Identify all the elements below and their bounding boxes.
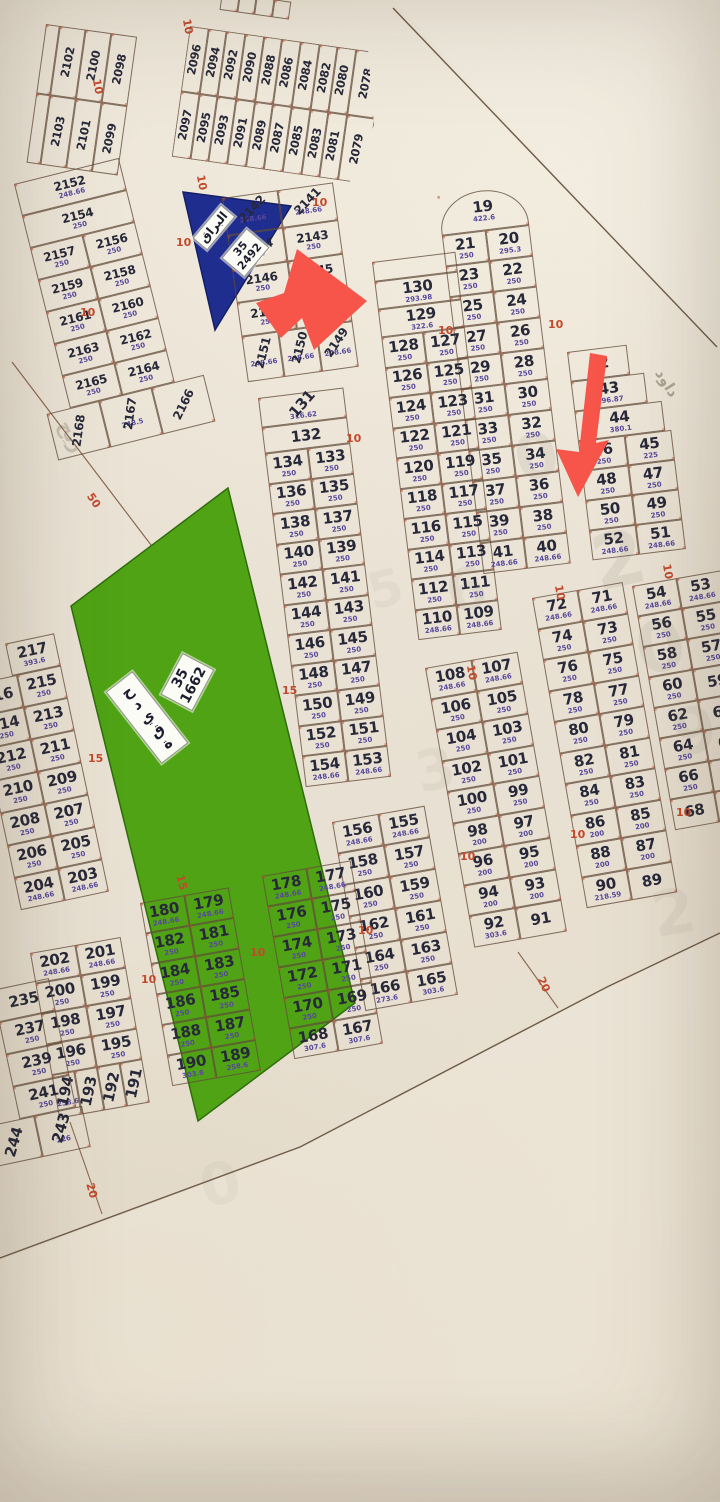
plot-number: 192 (101, 1070, 122, 1103)
plot-area-value: 250 (20, 828, 36, 838)
plot-number: 128 (387, 337, 419, 356)
plot-area-value: 250 (618, 729, 634, 738)
plot-area-value: 250 (208, 940, 224, 949)
plot-number: 150 (301, 695, 333, 714)
plot-area-value: 250 (219, 1001, 235, 1010)
plot-area-value: 250 (60, 1028, 76, 1037)
plot-area-value: 250 (573, 737, 589, 746)
plot-number: 89 (641, 872, 664, 890)
plot-area-value: 250 (304, 651, 319, 660)
plot-area-value: 250 (706, 654, 720, 663)
plot-number: 2096 (186, 44, 204, 77)
plot-area-value: 250 (458, 500, 473, 509)
plot-area-value: 250 (0, 731, 15, 741)
plot-row (219, 0, 291, 20)
plot-number: 149 (344, 690, 376, 709)
plot-area-value: 258.6 (226, 1062, 249, 1073)
plot-area-value: 250 (255, 284, 270, 293)
plot-area-value: 250 (412, 475, 427, 484)
block-top-cut (219, 0, 291, 20)
block-2098: 210221002098210321012099 (27, 24, 138, 175)
plot-68: 68 (670, 792, 720, 830)
plot-number: 116 (410, 518, 442, 537)
plot-number: 127 (429, 332, 461, 351)
plot-area-value: 248.66 (601, 546, 629, 556)
plot-area-value: 250 (502, 736, 518, 745)
plot-area-value: 250 (357, 737, 372, 746)
plot-number: 2078 (357, 68, 375, 101)
plot-area-value: 250 (43, 722, 59, 732)
plot-area-value: 250 (357, 868, 373, 877)
plot-91: 91 (515, 900, 567, 939)
plot-area-value: 250 (13, 795, 29, 805)
plot-number: 137 (322, 508, 354, 527)
plot-area-value: 250 (138, 374, 154, 384)
plot-area-value: 250 (629, 791, 645, 800)
plot-area-value: 248.66 (312, 772, 340, 782)
plot-number: 216 (0, 685, 15, 706)
block-2141: 2142248.662141248.6621442502143250214625… (222, 182, 359, 382)
plot-number: 2090 (241, 52, 259, 85)
plot-area-value: 250 (567, 706, 583, 715)
plot-area-value: 250 (489, 498, 504, 507)
plot-area-value: 250 (330, 913, 346, 922)
plot-area-value: 248.66 (491, 559, 519, 569)
plot-109: 109248.66 (456, 600, 501, 635)
plot-area-value: 250 (57, 786, 73, 796)
plot-area-value: 250 (36, 689, 52, 699)
plot-number: 124 (395, 397, 427, 416)
cadastral-map: 2102210020982103210120992096209420922090… (0, 0, 720, 1502)
plot-area-value: 250 (602, 636, 618, 645)
plot-number: 132 (290, 426, 322, 445)
plot-area-value: 393.6 (23, 657, 46, 668)
plot-168: 168307.6 (289, 1021, 339, 1059)
plot-89: 89 (627, 861, 678, 900)
plot-area-value: 250 (443, 379, 458, 388)
plot-number: 138 (279, 513, 311, 532)
plot-area-value: 250 (613, 698, 629, 707)
plot-area-value: 293.98 (405, 293, 433, 303)
plot-area-value: 250 (466, 807, 482, 816)
plot-area-value: 250 (562, 675, 578, 684)
plot-area-value: 273.6 (376, 994, 399, 1005)
plot-area-value: 250 (114, 278, 130, 288)
plot-area-value: 250 (311, 276, 326, 285)
plot-blocks-layer: 2102210020982103210120992096209420922090… (0, 0, 720, 1502)
plot-number: 68 (683, 802, 706, 820)
plot-90: 90218.59 (581, 869, 632, 908)
plot-area-value: 250 (667, 692, 683, 701)
plot-number: 2101 (75, 119, 93, 152)
plot-area-value: 250 (374, 963, 390, 972)
plot-number: 2080 (334, 65, 352, 98)
plot-number: 119 (444, 453, 476, 472)
plot-area-value: 250 (346, 646, 361, 655)
plot-area-value: 250 (260, 318, 275, 327)
plot-area-value: 250 (397, 354, 412, 363)
block-42: 4243296.8744380.146250452254825047250502… (567, 341, 686, 561)
plot-area-value: 250 (624, 760, 640, 769)
plot-area-value: 250 (368, 931, 384, 940)
plot-area-value: 250 (339, 586, 354, 595)
plot-area-value: 295.3 (499, 246, 522, 256)
plot-area-value: 250 (100, 990, 116, 999)
plot-area-value: 250 (478, 406, 493, 415)
plot-area-value: 200 (640, 853, 656, 862)
plot-area-value: 250 (350, 676, 365, 685)
plot-area-value: 250 (533, 493, 548, 502)
plot-area-value: 200 (518, 830, 534, 839)
plot-area-value: 248.66 (425, 625, 453, 635)
plot-area-value: 250 (446, 409, 461, 418)
plot-area-value: 225 (643, 451, 658, 460)
plot-area-value: 250 (463, 283, 478, 292)
plot-area-value: 307.6 (348, 1035, 371, 1046)
plot-number: 115 (451, 513, 483, 532)
plot-area-value: 250 (423, 565, 438, 574)
plot-number: 133 (314, 448, 346, 467)
plot-area-value: 250 (315, 310, 330, 319)
plot-area-value: 250 (26, 860, 42, 870)
plot-area-value: 250 (214, 971, 230, 980)
plot-area-value: 250 (70, 851, 86, 861)
plot-190: 190303.6 (167, 1048, 217, 1086)
plot-number: 2103 (49, 115, 67, 148)
plot-number: 2089 (251, 119, 269, 152)
plot-area-value: 200 (483, 900, 499, 909)
block-131: 131316.621321342501332501362501352501382… (258, 388, 391, 787)
plot-number: 193 (79, 1074, 100, 1107)
plot-area-value: 250 (224, 1032, 240, 1041)
plot-area-value: 250 (683, 784, 699, 793)
plot-area-value: 250 (482, 437, 497, 446)
plot-area-value: 248.66 (355, 766, 383, 776)
plot-number: 142 (286, 574, 318, 593)
plot-area-value: 250 (427, 596, 442, 605)
plot-area-value: 250 (474, 375, 489, 384)
plot-area-value: 250 (470, 344, 485, 353)
plot-area-value: 250 (300, 621, 315, 630)
plot-area-value: 250 (341, 974, 357, 983)
plot-area-value: 250 (354, 707, 369, 716)
plot-area-value: 250 (328, 495, 343, 504)
plot-number: 2098 (111, 53, 129, 86)
plot-110: 110248.66 (415, 605, 460, 640)
plot-area-value: 250 (302, 1013, 318, 1022)
plot-area-value: 250 (537, 524, 552, 533)
plot-number: 244 (2, 1125, 25, 1158)
plot-area-value: 250 (420, 955, 436, 964)
plot-area-value: 250 (408, 444, 423, 453)
plot-area-value: 250 (466, 314, 481, 323)
plot-area-value: 250 (6, 763, 22, 773)
plot-area-value: 250 (281, 470, 296, 479)
plot-number: 2079 (348, 133, 366, 166)
plot-area-value: 250 (331, 525, 346, 534)
plot-number: 2094 (204, 46, 222, 79)
plot-2150: 2150248.66 (278, 326, 321, 377)
plot-number: 2166 (171, 387, 196, 421)
plot-area-value: 250 (175, 1009, 191, 1018)
plot-area-value: 250 (650, 511, 665, 520)
plot-number: 123 (437, 392, 469, 411)
plot-area-value: 200 (635, 822, 651, 831)
plot-area-value: 250 (416, 505, 431, 514)
plot-area-value: 250 (289, 530, 304, 539)
plot-area-value: 200 (472, 838, 488, 847)
plot-area-value: 422.6 (473, 214, 496, 224)
plot-area-value: 250 (521, 400, 536, 409)
plot-area-value: 250 (106, 246, 122, 256)
plot-area-value: 250 (656, 631, 672, 640)
plot-area-value: 250 (496, 705, 512, 714)
plot-51: 51248.66 (636, 519, 686, 555)
plot-row: 244243226 (0, 1106, 91, 1168)
plot-area-value: 250 (596, 457, 611, 466)
plot-number: 2088 (260, 54, 278, 87)
plot-number: 2091 (232, 117, 250, 150)
plot-area-value: 250 (50, 754, 66, 764)
plot-154: 154248.66 (302, 751, 348, 787)
plot-area-value: 250 (485, 467, 500, 476)
plot-area-value: 248.66 (648, 540, 676, 550)
plot-area-value: 250 (469, 591, 484, 600)
plot-243: 243226 (34, 1106, 91, 1157)
plot-area-value: 250 (363, 900, 379, 909)
plot-2151: 2151248.66 (241, 331, 284, 382)
plot-number: 2097 (177, 109, 195, 142)
plot-area-value: 250 (556, 644, 572, 653)
plot-153: 153248.66 (345, 746, 391, 782)
plot-area-value: 250 (286, 921, 302, 930)
plot-area-value: 250 (291, 952, 307, 961)
plot-area-value: 200 (524, 861, 540, 870)
plot-area-value: 250 (169, 979, 185, 988)
plot-area-value: 250 (38, 1100, 54, 1110)
plot-165: 165303.6 (406, 963, 458, 1003)
plot-area-value: 250 (700, 623, 716, 632)
plot-area-value: 250 (465, 560, 480, 569)
plot-area-value: 303.6 (422, 986, 445, 997)
block-179: 180248.66179248.661822501812501842501832… (140, 887, 261, 1086)
plot-area-value: 250 (296, 591, 311, 600)
plot-area-value: 250 (401, 384, 416, 393)
plot-area-value: 250 (607, 667, 623, 676)
plot-area-value: 200 (595, 861, 611, 870)
plot-area-value: 250 (315, 742, 330, 751)
plot-area-value: 250 (578, 768, 594, 777)
plot-area-value: 250 (461, 776, 477, 785)
plot-area-value: 250 (64, 818, 80, 828)
plot-number: 59 (706, 672, 720, 690)
plot-area-value: 248.66 (534, 554, 562, 564)
plot-area-value: 380.1 (609, 424, 632, 434)
plot-area-value: 250 (335, 555, 350, 564)
plot-area-value: 303.6 (485, 930, 508, 941)
plot-92: 92303.6 (469, 908, 521, 947)
plot-area-value: 250 (529, 462, 544, 471)
plot-number: 2086 (278, 57, 296, 90)
plot-area-value: 296.87 (596, 395, 624, 405)
plot-area-value: 250 (403, 860, 419, 869)
plot-area-value: 250 (513, 799, 529, 808)
plot-number: 2085 (288, 125, 306, 158)
plot-area-value: 250 (506, 277, 521, 286)
plot-number: 2095 (195, 112, 213, 145)
plot-number: 2168 (71, 414, 87, 448)
plot-area-value: 250 (306, 243, 321, 252)
plot-area-value: 250 (164, 948, 180, 957)
plot-area-value: 250 (180, 1040, 196, 1049)
plot-area-value: 250 (78, 355, 94, 365)
plot-area-value: 200 (589, 830, 605, 839)
plot-area-value: 303.6 (182, 1070, 205, 1081)
plot-area-value: 250 (70, 323, 86, 333)
plot-area-value: 250 (285, 500, 300, 509)
plot-area-value: 250 (518, 370, 533, 379)
plot-area-value: 250 (459, 252, 474, 261)
plot-area-value: 250 (439, 348, 454, 357)
plot-area-value: 250 (525, 431, 540, 440)
plot-area-value: 250 (405, 414, 420, 423)
plot-number: 145 (336, 629, 368, 648)
plot-area-value: 250 (292, 560, 307, 569)
plot-area-value: 250 (420, 535, 435, 544)
plot-area-value: 250 (307, 682, 322, 691)
plot-area-value: 250 (72, 220, 88, 230)
plot-area-value: 250 (450, 714, 466, 723)
plot-number: 2102 (59, 46, 77, 79)
plot-number: 112 (417, 579, 449, 598)
plot-area-value: 250 (507, 767, 523, 776)
plot-number: 134 (272, 453, 304, 472)
plot-area-value: 250 (493, 529, 508, 538)
plot-number: 2081 (325, 130, 343, 163)
plot-number: 2093 (214, 114, 232, 147)
plot-area-value: 250 (297, 982, 313, 991)
plot-area-value: 250 (130, 342, 146, 352)
plot-number: 146 (294, 634, 326, 653)
block-91: 108248.66107248.661062501052501042501032… (425, 652, 567, 948)
plot-number: 2087 (269, 122, 287, 155)
plot-area-value: 250 (343, 616, 358, 625)
plot-area-value: 250 (584, 799, 600, 808)
plot-area-value: 250 (31, 1068, 47, 1078)
plot-area-value: 250 (86, 387, 102, 397)
plot-area-value: 250 (600, 487, 615, 496)
block-2078: 2096209420922090208820862084208220802078… (172, 26, 384, 184)
plot-area-value: 250 (661, 662, 677, 671)
plot-area-value: 250 (346, 1005, 362, 1014)
plot-number: 2082 (315, 62, 333, 95)
plot-number: 61 (711, 703, 720, 721)
plot-number: 191 (124, 1066, 145, 1099)
plot-number: 2083 (306, 127, 324, 160)
plot-189: 189258.6 (211, 1040, 261, 1078)
plot-area-value: 250 (510, 308, 525, 317)
plot-area-value: 250 (251, 251, 266, 260)
plot-row: 210221002098 (36, 24, 137, 106)
plot-area-value: 250 (54, 998, 70, 1007)
plot-number: 2084 (297, 59, 315, 92)
plot-area-value: 250 (677, 753, 693, 762)
plot-area-value: 200 (529, 892, 545, 901)
plot-empty (271, 0, 291, 20)
plot-area-value: 250 (450, 439, 465, 448)
plot-52: 52248.66 (589, 525, 639, 561)
plot-area-value: 248.66 (466, 620, 494, 630)
plot-area-value: 322.6 (411, 322, 434, 332)
plot-number: 2100 (85, 50, 103, 83)
plot-number: 235 (7, 990, 40, 1011)
plot-area-value: 250 (54, 259, 70, 269)
plot-area-value: 250 (324, 464, 339, 473)
plot-area-value: 250 (409, 892, 425, 901)
plot-area-value: 200 (477, 869, 493, 878)
plot-area-value: 250 (455, 745, 471, 754)
plot-area-value: 250 (110, 1051, 126, 1060)
plot-40: 40248.66 (523, 533, 570, 569)
block-2152: 2152248.66215425021572502156250215925021… (14, 158, 186, 455)
plot-167: 167307.6 (333, 1013, 383, 1051)
plot-area-value: 250 (122, 310, 138, 320)
plot-area-value: 250 (454, 470, 469, 479)
plot-area-value: 307.6 (304, 1043, 327, 1054)
plot-area-value: 250 (514, 339, 529, 348)
plot-number: 42 (588, 355, 610, 372)
plot-area-value: 250 (672, 723, 688, 732)
plot-area-value: 250 (647, 481, 662, 490)
plot-2149: 2149248.66 (315, 321, 358, 372)
plot-number: 2099 (101, 123, 119, 156)
plot-area-value: 250 (336, 944, 352, 953)
plot-number: 141 (329, 569, 361, 588)
plot-area-value: 250 (414, 923, 430, 932)
block-203: 217393.621621525021425021325021225021125… (0, 633, 109, 910)
plot-area-value: 250 (105, 1021, 121, 1030)
plot-area-value: 250 (24, 1035, 40, 1045)
plot-area-value: 250 (604, 516, 619, 525)
plot-number: 120 (402, 458, 434, 477)
plot-area-value: 250 (311, 712, 326, 721)
plot-number: 91 (530, 910, 553, 928)
plot-number: 111 (459, 574, 491, 593)
plot-number: 2092 (223, 49, 241, 82)
plot-area-value: 250 (62, 291, 78, 301)
plot-area-value: 250 (461, 530, 476, 539)
